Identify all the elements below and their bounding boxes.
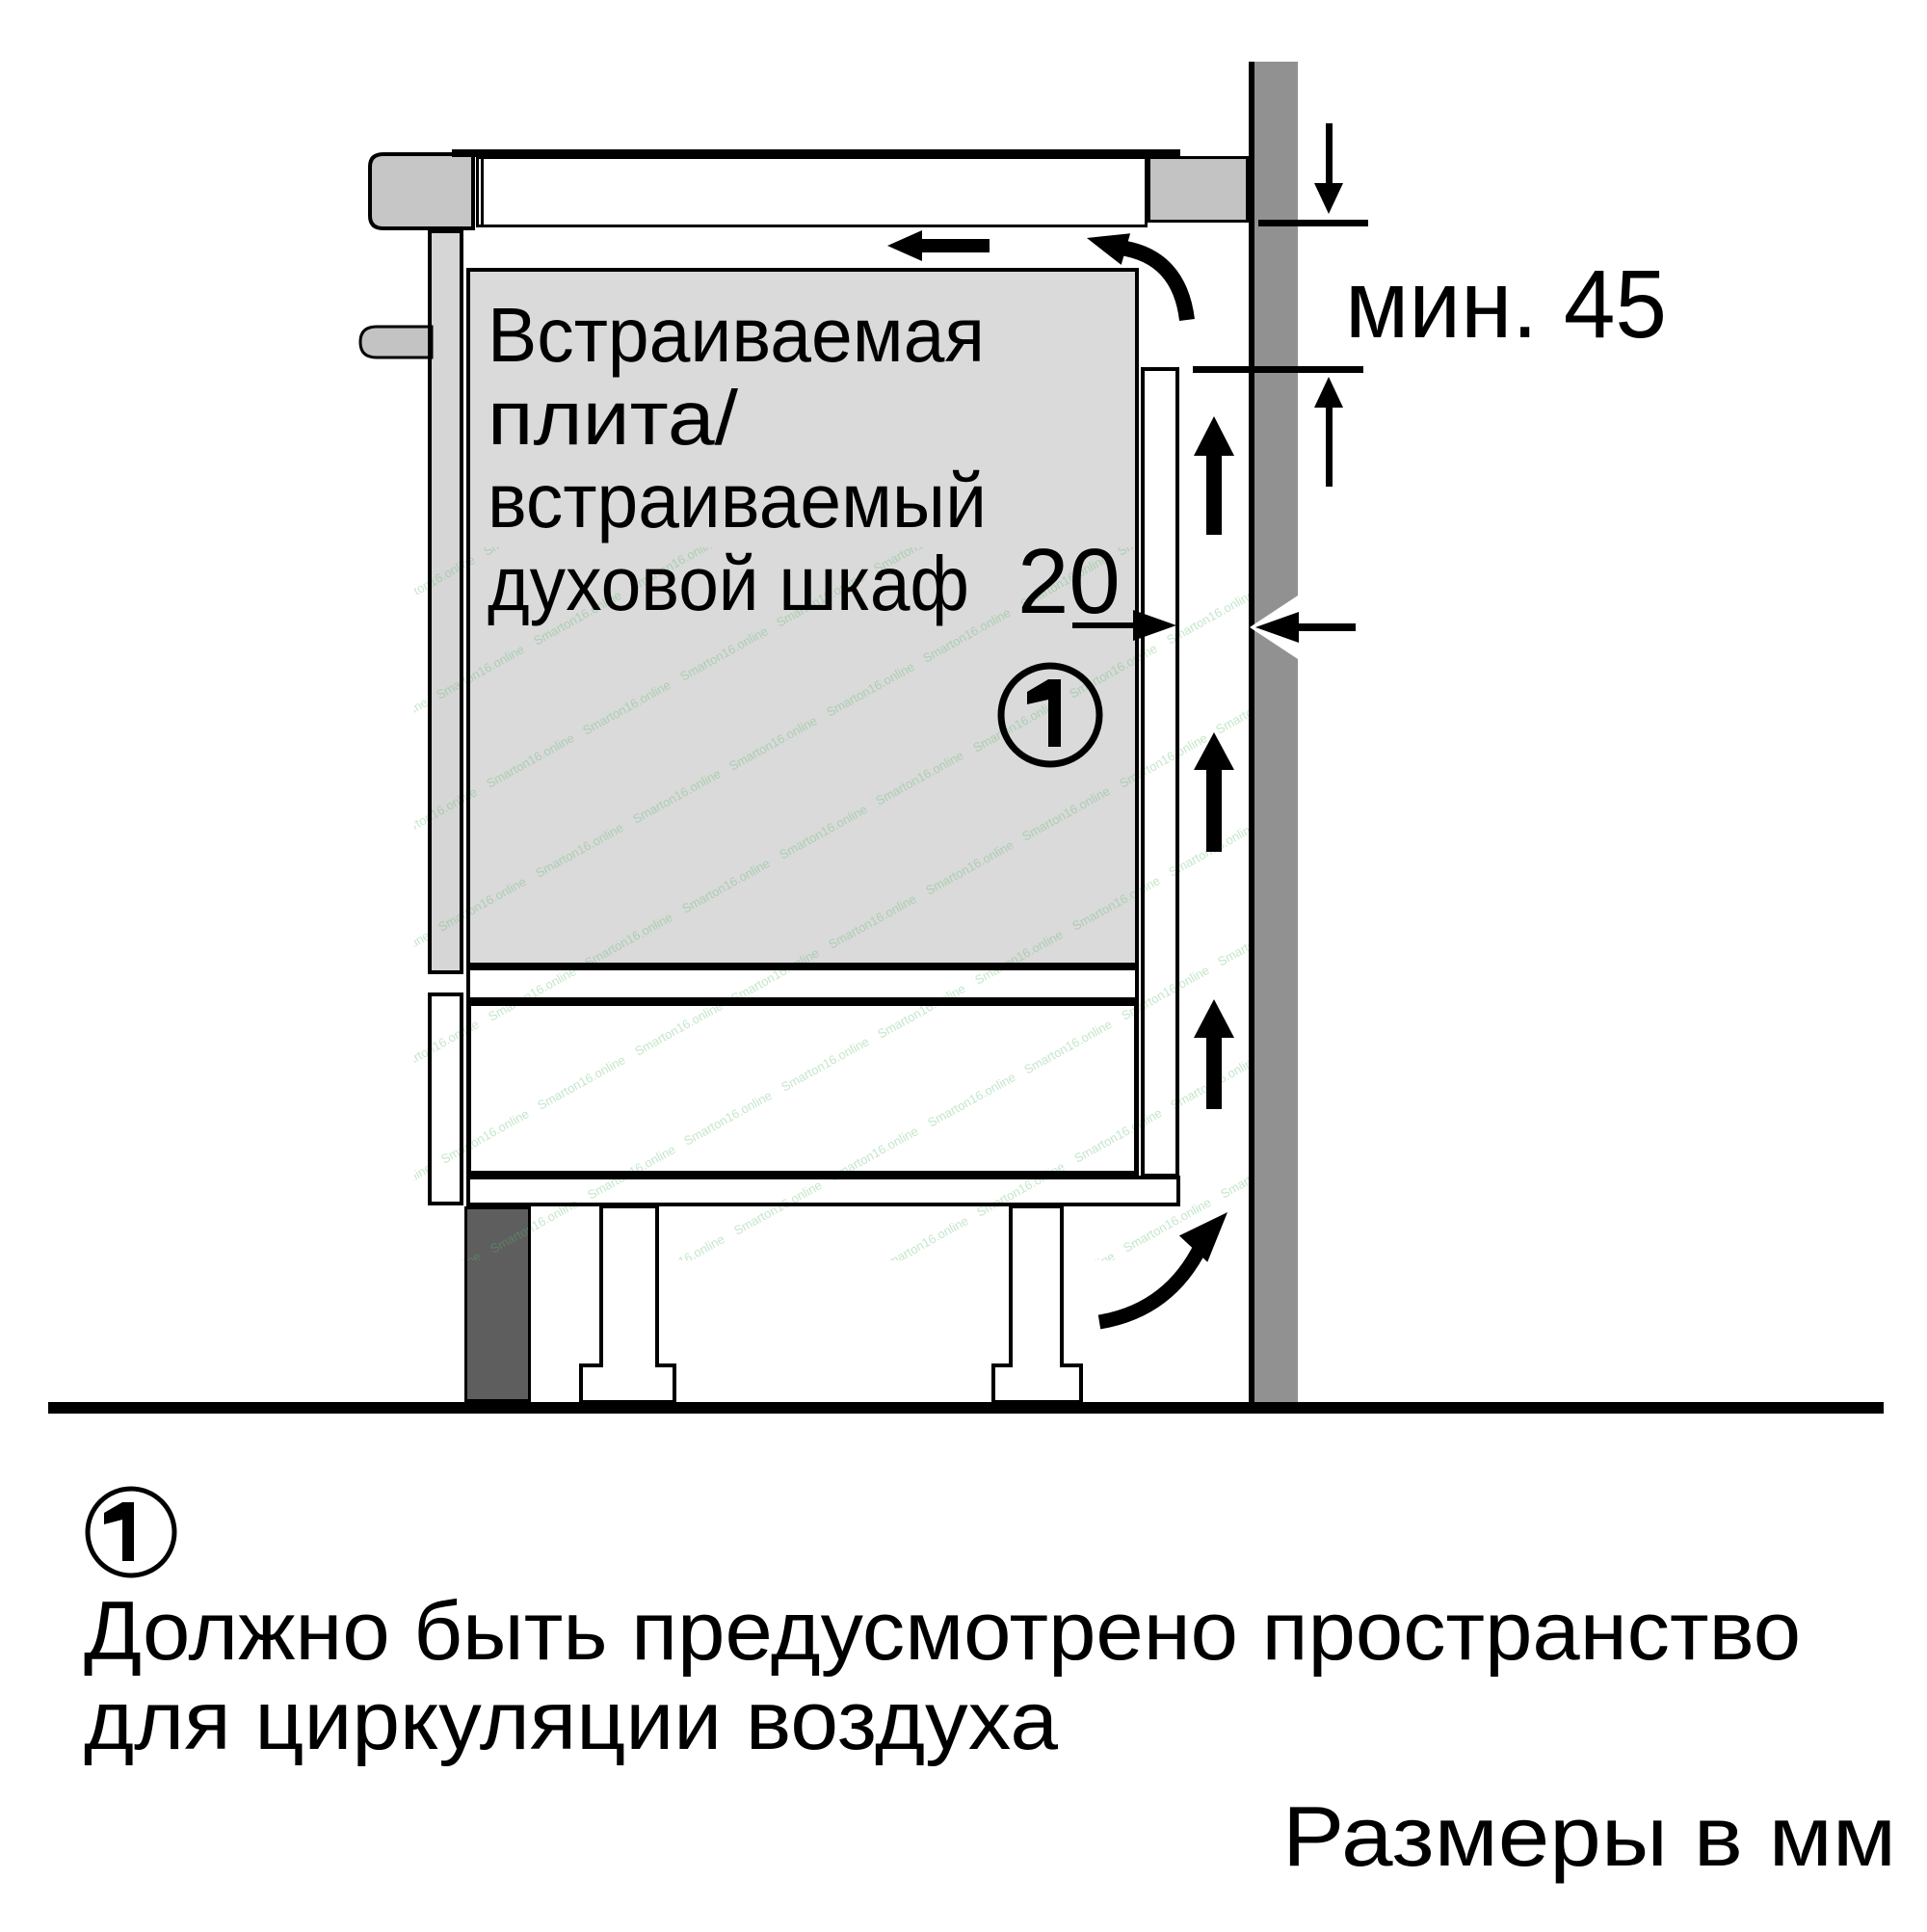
svg-text:20: 20 <box>1017 530 1121 633</box>
svg-text:плита/: плита/ <box>488 375 739 461</box>
svg-text:мин. 45: мин. 45 <box>1345 251 1667 358</box>
svg-text:Размеры в мм: Размеры в мм <box>1282 1788 1896 1884</box>
svg-text:встраиваемый: встраиваемый <box>488 458 987 543</box>
svg-text:духовой шкаф: духовой шкаф <box>488 541 969 626</box>
svg-text:Встраиваемая: Встраиваемая <box>488 292 985 378</box>
svg-text:для циркуляции воздуха: для циркуляции воздуха <box>84 1675 1058 1767</box>
svg-text:Должно быть предусмотрено прос: Должно быть предусмотрено пространство <box>84 1585 1801 1678</box>
